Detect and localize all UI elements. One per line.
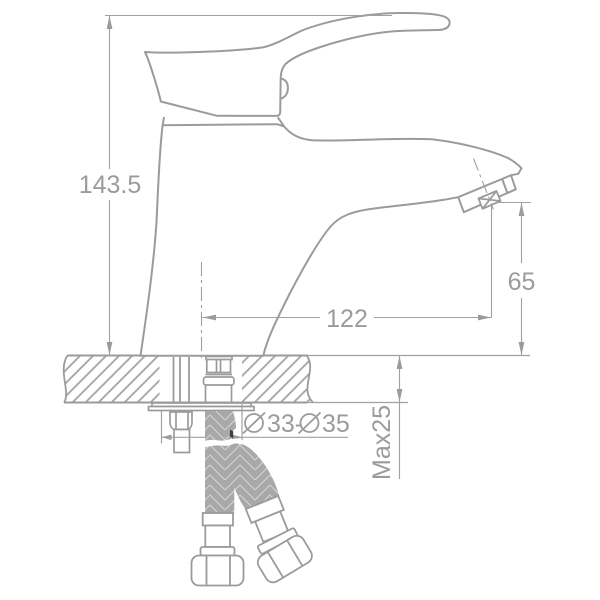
svg-text:33-: 33-	[267, 410, 303, 438]
svg-text:35: 35	[322, 410, 350, 438]
svg-text:65: 65	[508, 268, 536, 296]
svg-text:122: 122	[326, 305, 368, 333]
svg-text:143.5: 143.5	[79, 171, 142, 199]
svg-text:Max25: Max25	[368, 405, 396, 480]
